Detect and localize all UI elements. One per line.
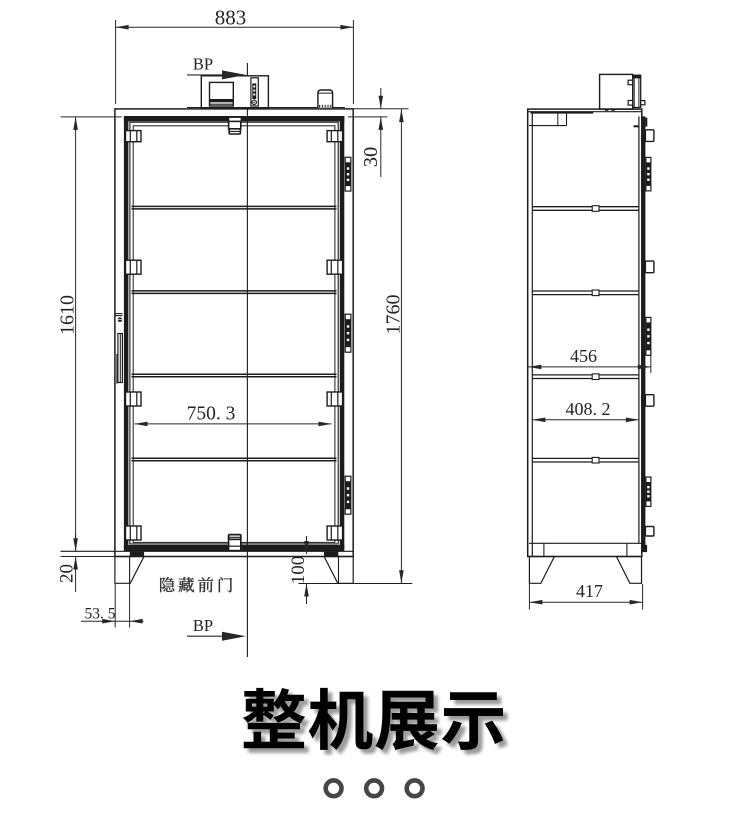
svg-text:456: 456 [570, 346, 597, 366]
svg-text:1760: 1760 [383, 295, 405, 335]
svg-text:1610: 1610 [57, 295, 79, 335]
svg-text:53. 5: 53. 5 [85, 606, 116, 623]
svg-text:417: 417 [576, 581, 603, 601]
svg-text:408. 2: 408. 2 [566, 399, 611, 419]
svg-text:750. 3: 750. 3 [187, 403, 236, 424]
svg-text:BP: BP [193, 616, 213, 635]
svg-text:883: 883 [215, 6, 247, 30]
svg-text:BP: BP [193, 55, 213, 74]
svg-text:30: 30 [360, 147, 382, 168]
svg-text:20: 20 [57, 564, 78, 583]
svg-text:100: 100 [288, 556, 309, 585]
